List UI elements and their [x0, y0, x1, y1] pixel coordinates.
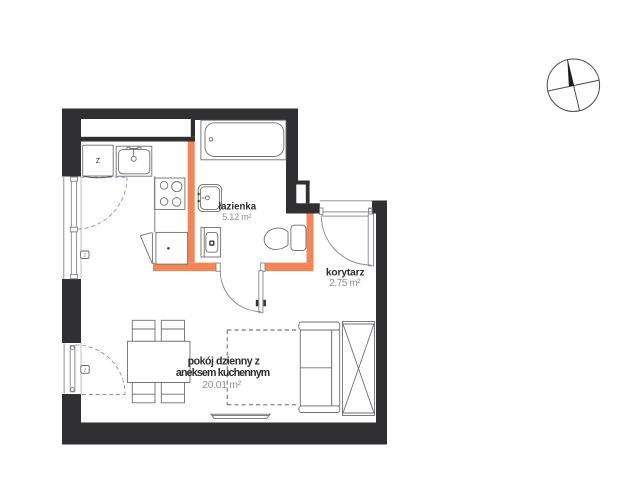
svg-text:Z: Z	[96, 158, 101, 165]
svg-text:korytarz: korytarz	[326, 268, 365, 279]
svg-text:pokój dzienny z: pokój dzienny z	[188, 356, 260, 368]
svg-text:2.75 m²: 2.75 m²	[329, 278, 361, 289]
svg-text:łazienka: łazienka	[218, 201, 256, 212]
svg-text:aneksem kuchennym: aneksem kuchennym	[176, 367, 270, 379]
svg-text:5.12 m²: 5.12 m²	[222, 212, 251, 222]
svg-text:20.01 m²: 20.01 m²	[202, 380, 241, 391]
